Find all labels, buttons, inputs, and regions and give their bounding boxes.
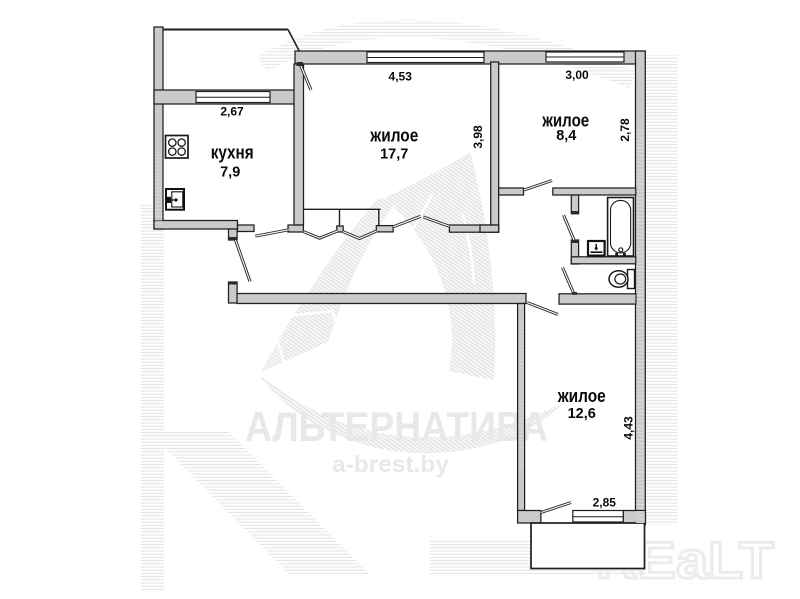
svg-text:2,78: 2,78 xyxy=(618,118,632,142)
svg-text:17,7: 17,7 xyxy=(380,146,408,162)
svg-text:АЛЬТЕРНАТИВА: АЛЬТЕРНАТИВА xyxy=(245,403,548,450)
svg-text:3,98: 3,98 xyxy=(471,125,485,149)
svg-text:4,43: 4,43 xyxy=(621,416,635,440)
svg-text:2,67: 2,67 xyxy=(220,105,244,119)
svg-text:a-brest.by: a-brest.by xyxy=(332,451,449,477)
svg-text:2,85: 2,85 xyxy=(593,496,617,510)
svg-text:3,00: 3,00 xyxy=(565,68,589,82)
svg-text:жилое: жилое xyxy=(557,386,606,406)
svg-text:4,53: 4,53 xyxy=(389,69,413,83)
svg-text:12,6: 12,6 xyxy=(568,406,596,422)
svg-text:кухня: кухня xyxy=(211,143,254,163)
svg-text:жилое: жилое xyxy=(369,126,418,146)
svg-text:8,4: 8,4 xyxy=(556,128,576,144)
svg-text:7,9: 7,9 xyxy=(220,164,240,180)
